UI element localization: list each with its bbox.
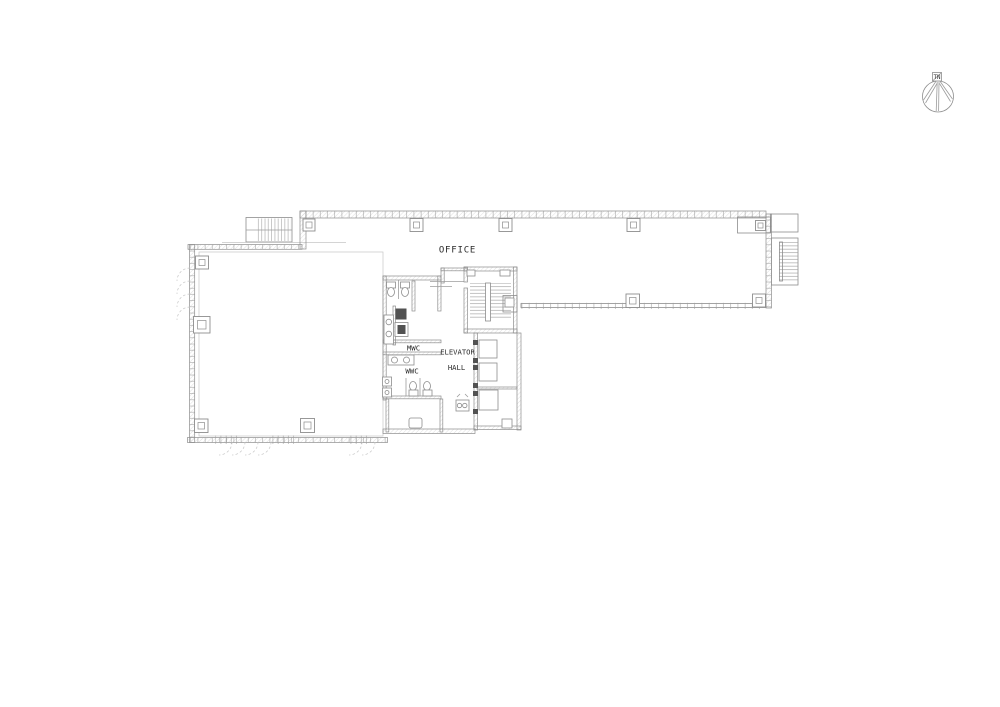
left-room-walls <box>188 245 388 445</box>
office-label: OFFICE <box>439 246 476 256</box>
north-arrow-icon: TN <box>923 73 954 113</box>
floor-plan-drawing: TN <box>0 0 1000 707</box>
exterior-stair-northwest <box>222 218 346 243</box>
elevator-hall-label-line2: HALL <box>448 363 465 372</box>
elevator-car <box>479 390 498 410</box>
elevator-car <box>479 340 497 358</box>
service-fixture-icon <box>456 394 469 411</box>
floor-plan-canvas: TN <box>0 0 1000 707</box>
central-stair <box>464 267 517 333</box>
elevator-car <box>479 363 497 381</box>
elevator-bank <box>473 333 521 430</box>
mens-wc-fixtures <box>384 280 410 344</box>
office-wing-walls <box>300 211 772 309</box>
elevator-hall-label-line1: ELEVATOR <box>440 348 475 357</box>
mens-wc-label: MWC <box>407 344 420 353</box>
womens-wc-label: WWC <box>405 367 418 376</box>
true-north-label: TN <box>934 75 941 81</box>
